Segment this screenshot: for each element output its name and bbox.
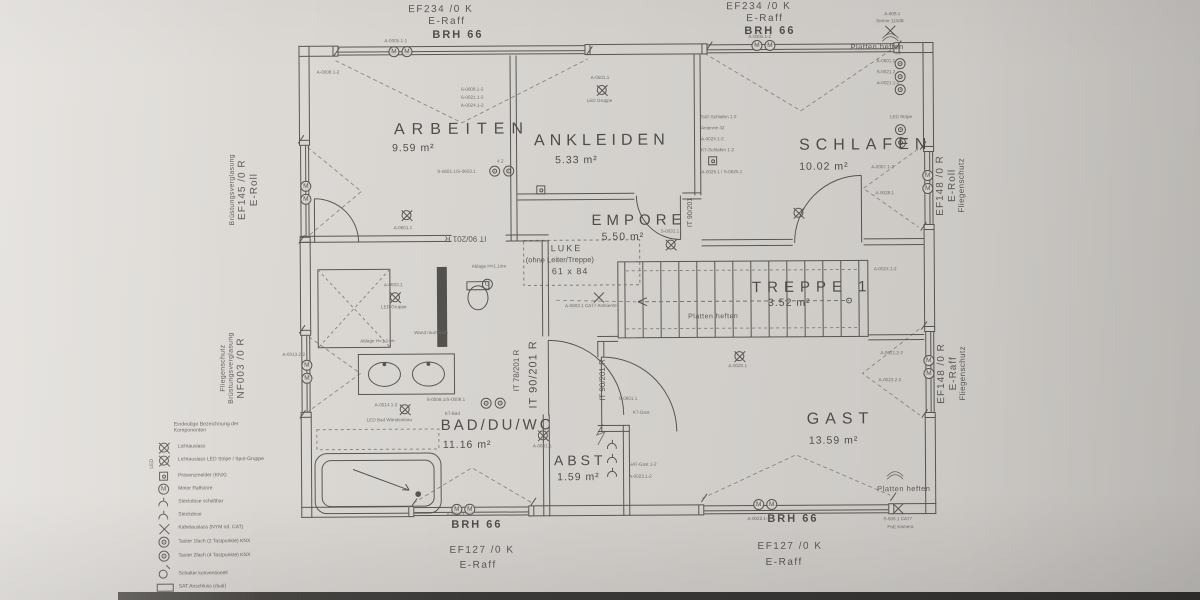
window-label-right-upper: EF148 /0 R E-Roll Fliegenschutz	[934, 110, 966, 260]
interior-wall-segment	[300, 235, 452, 243]
device-code-label: A-0005.1-2	[748, 35, 771, 40]
room-area: 3.52 m²	[768, 297, 811, 309]
legend-header: Eindeutige Bezeichnung der Komponenten	[174, 421, 248, 434]
door-size-label: IT 90/201 R	[445, 234, 487, 243]
device-code-label: A-0023.1-2	[629, 475, 652, 480]
window-code: EF127 /0 K	[449, 545, 514, 556]
exterior-wall-segment	[924, 227, 936, 329]
light-outlet-icon	[158, 442, 170, 454]
device-code-label: S-0008.1/S-0008.1	[427, 398, 466, 403]
window-cap	[408, 506, 414, 517]
device-code-label: A-0601.2	[877, 59, 896, 64]
device-code-label: A-0028.1	[875, 191, 894, 196]
window-label-right-lower: EF148 /0 R E-Raff Fliegenschutz	[935, 298, 967, 448]
window-sill-height: BRH 66	[432, 29, 483, 41]
legend-led-label: LED	[149, 459, 155, 469]
device-code-label: A-0023.2-2	[878, 378, 901, 383]
device-code-label: LED Bad Wandeinbau	[367, 418, 412, 423]
device-code-label: LED Gruppe	[587, 99, 613, 104]
door-size-label: IT 90/201 R	[527, 340, 539, 408]
room-area: 1.59 m²	[557, 471, 600, 483]
switch-icon	[159, 570, 168, 579]
device-code-label: SAT-Gast 1-2	[629, 463, 657, 468]
device-code-label: Antenne 42	[701, 126, 725, 131]
room-area: 5.50 m²	[602, 231, 645, 243]
window-code: EF127 /0 K	[757, 541, 822, 552]
window-label-left-upper: Brüstungsverglasung EF145 /0 R E-Roll	[228, 115, 260, 265]
legend-label: Taster 1fach (2 Tastpunkte) KNX	[178, 538, 250, 544]
push-button-icon	[481, 398, 492, 409]
interior-wall-segment	[623, 425, 631, 516]
device-code-label: SAT-Schlafen 1-2	[701, 115, 737, 120]
device-code-label: A-0021.1-2	[877, 81, 900, 86]
push-button-icon	[503, 166, 514, 177]
device-code-label: 4 2	[497, 160, 503, 165]
cable-outlet-icon	[158, 523, 169, 534]
socket-icon	[607, 471, 617, 477]
push-button-icon	[895, 124, 906, 135]
legend-label: Lichtauslass	[178, 443, 206, 449]
motor-icon	[764, 40, 775, 51]
sat-outlet-icon	[157, 584, 174, 592]
window-shade-type: E-Roll	[248, 115, 260, 265]
window-cap	[528, 505, 534, 516]
window-sill-height: BRH 66	[767, 513, 818, 525]
window-code: EF234 /0 K	[408, 4, 473, 15]
interior-wall-segment	[702, 239, 793, 247]
room-area: 9.59 m²	[392, 142, 435, 154]
legend-label: Präsenzmelder (KNX)	[178, 472, 227, 478]
exterior-wall-segment	[298, 46, 310, 143]
interior-wall-segment	[597, 341, 604, 357]
room-name: TREPPE 1	[752, 278, 873, 296]
motor-icon	[751, 40, 762, 51]
photo-edge-shadow	[118, 592, 1200, 600]
device-code-label: A-0005.1-1	[384, 39, 407, 44]
device-code-label: KT-Schlafen 1-2	[701, 148, 734, 153]
device-code-label: LED Gruppe	[381, 305, 407, 310]
device-code-label: A-0024.1-2	[701, 137, 724, 142]
window-cap	[925, 412, 936, 418]
room-name: BAD/DU/WC	[441, 416, 554, 434]
light-outlet-icon	[792, 207, 804, 219]
button-1x-icon	[158, 537, 169, 548]
room-name: ARBEITEN	[394, 120, 530, 139]
light-outlet-icon	[400, 209, 412, 221]
window-shade-type: E-Raff	[766, 557, 803, 568]
device-code-label: A-0008.1-2	[317, 71, 340, 76]
interior-wall-segment	[864, 238, 924, 245]
room-name: GAST	[807, 410, 875, 428]
exterior-wall-segment	[531, 504, 701, 516]
light-outlet-icon	[399, 403, 411, 415]
socket-icon	[607, 443, 617, 449]
stairs	[618, 260, 868, 338]
device-code-label: S-608.1 CAT7	[883, 517, 912, 522]
device-code-label: A-0603.1	[384, 283, 403, 288]
device-code-label: S-0601.1	[619, 397, 638, 402]
window-shade-type: E-Raff	[746, 13, 783, 24]
push-button-icon	[895, 84, 906, 95]
legend-label: Motor Raffstore	[178, 485, 212, 491]
exterior-wall-segment	[922, 42, 934, 149]
cable-outlet-icon	[892, 502, 903, 513]
cable-outlet-icon	[593, 291, 604, 302]
motor-icon	[923, 368, 934, 379]
floor-plan-photo: ARBEITEN 9.59 m² ANKLEIDEN 5.33 m² SCHLA…	[0, 0, 1200, 600]
motor-icon	[401, 46, 412, 57]
device-code-label: A-0601.1	[533, 444, 552, 449]
door-size-label: IT 78/201 R	[512, 350, 521, 392]
device-code-label: KT-Gast	[633, 411, 650, 416]
legend-label: Lichtauslass LED Stripe / Spot-Gruppe	[178, 456, 264, 463]
device-code-label: Wand raumhoch	[414, 331, 448, 336]
device-code-label: LED Stripe	[890, 115, 912, 120]
room-name: SCHLAFEN	[799, 136, 932, 155]
device-code-label: S-0008.1-2	[461, 88, 484, 93]
exterior-wall-segment	[300, 240, 312, 333]
device-code-label: PoE Kamera	[887, 525, 913, 530]
motor-icon	[766, 499, 777, 510]
device-code-label: A-0011-1	[446, 513, 465, 518]
room-area: 5.33 m²	[555, 154, 598, 166]
device-code-label: KT-Bad	[445, 412, 460, 417]
presence-detector-icon	[708, 156, 717, 165]
window-band	[335, 45, 587, 56]
room-name: EMPORE	[591, 211, 686, 229]
exterior-wall-segment	[301, 415, 313, 518]
push-button-icon	[489, 166, 500, 177]
room-area: 10.02 m²	[799, 160, 849, 172]
motor-icon	[922, 170, 933, 181]
device-code-label: S-0601.1/S-0603.1	[437, 170, 476, 175]
device-code-label: 4 2	[894, 51, 900, 56]
motor-icon	[388, 46, 399, 57]
interior-wall-segment	[597, 336, 618, 342]
device-code-label: A-608.1	[884, 12, 900, 17]
device-code-label: A-0013.2-2	[282, 353, 305, 358]
window-code: EF148 /0 R	[934, 110, 946, 260]
push-button-icon	[495, 398, 506, 409]
device-code-label: S-0021.2	[877, 70, 896, 75]
exterior-wall-segment	[301, 506, 411, 518]
window-code: EF145 /0 R	[236, 115, 248, 265]
exterior-wall-segment	[925, 415, 937, 514]
push-button-icon	[895, 58, 906, 69]
interior-wall-segment	[868, 334, 924, 340]
legend-label: Taster 2fach (4 Tastpunkte) KNX	[179, 552, 251, 558]
light-outlet-icon	[158, 455, 170, 467]
motor-icon	[753, 499, 764, 510]
device-code-label: A-0024.1-2	[874, 267, 897, 272]
legend-label: Schalter konventionell	[179, 570, 228, 576]
device-code-label: S-0021.1-2	[461, 96, 484, 101]
door-size-label: IT 90/201 R	[598, 359, 607, 401]
door-size-label: IT 90/201	[687, 198, 694, 227]
cable-outlet-icon	[884, 24, 895, 35]
room-name: ANKLEIDEN	[534, 132, 670, 151]
light-outlet-icon	[733, 350, 745, 362]
presence-detector-icon	[536, 185, 545, 194]
note-platten-heften: Platten heften	[688, 313, 738, 320]
motor-icon	[923, 355, 934, 366]
window-code: EF148 /0 R	[935, 298, 947, 448]
device-code-label: A-0601.1	[394, 226, 413, 231]
motor-icon	[464, 504, 475, 515]
floor-plan-sheet: ARBEITEN 9.59 m² ANKLEIDEN 5.33 m² SCHLA…	[0, 0, 1200, 600]
device-code-label: A-0021.2-2	[880, 351, 903, 356]
g-marker-icon	[482, 279, 493, 290]
socket-icon	[158, 514, 168, 520]
device-code-label: Ablage H=1.14m	[360, 339, 394, 344]
window-code: EF234 /0 K	[726, 1, 791, 12]
motor-icon	[301, 360, 312, 371]
note-platten-heften: Platten heften	[877, 484, 930, 493]
hatch-title: LUKE	[551, 243, 583, 253]
light-outlet-icon	[665, 239, 677, 251]
device-code-label: A-0024.1-2	[461, 104, 484, 109]
room-area: 11.16 m²	[443, 439, 492, 451]
device-code-label: Ablage H=1.14m	[472, 265, 506, 270]
motor-icon	[922, 183, 933, 194]
device-code-label: A-0501.1	[591, 76, 610, 81]
hatch-size: 61 x 84	[552, 266, 589, 276]
device-code-label: Sirene 110dB	[876, 19, 904, 24]
room-area: 13.59 m²	[809, 434, 859, 446]
window-shade-type: E-Raff	[428, 16, 465, 27]
window-note: Fliegenschutz	[958, 298, 967, 448]
legend-label: Kabelauslass (NYM od. CAT)	[178, 524, 243, 530]
legend-label: Steckdose	[178, 511, 201, 517]
socket-switched-icon	[158, 501, 168, 507]
light-outlet-icon	[596, 84, 608, 96]
device-code-label: A-0026.1 / S-0625.1	[701, 170, 742, 175]
motor-icon	[301, 373, 312, 384]
window-shade-type: E-Raff	[460, 560, 497, 571]
motor-icon	[158, 484, 169, 495]
socket-icon	[607, 457, 617, 463]
legend-label: Steckdose schaltbar	[178, 498, 223, 504]
motor-icon	[300, 181, 311, 192]
motor-icon	[300, 194, 311, 205]
presence-detector-icon	[159, 472, 168, 481]
window-sill-height: BRH 66	[451, 519, 502, 531]
hatch-subtitle: (ohne Leiter/Treppe)	[526, 255, 594, 264]
device-code-label: A-0022.1-2	[747, 517, 770, 522]
device-code-label: A-0007.1-2	[871, 165, 894, 170]
window-cap	[924, 326, 935, 332]
legend-label: SAT Anschluss (dual)	[179, 583, 226, 589]
window-cap	[698, 504, 704, 515]
device-code-label: A-0020.1	[728, 364, 747, 369]
exterior-wall-segment	[587, 43, 704, 55]
room-name: ABST	[554, 452, 607, 468]
interior-wall-segment	[510, 56, 518, 242]
device-code-label: S-0031.1	[661, 230, 680, 235]
window-note: Fliegenschutz	[957, 110, 966, 260]
button-2x-icon	[159, 551, 170, 562]
light-outlet-icon	[389, 291, 401, 303]
device-code-label: A-0603.1 CAT7 Ambiente	[565, 304, 617, 309]
device-code-label: A-0014.1-2	[375, 403, 398, 408]
interior-wall-segment	[517, 193, 634, 201]
